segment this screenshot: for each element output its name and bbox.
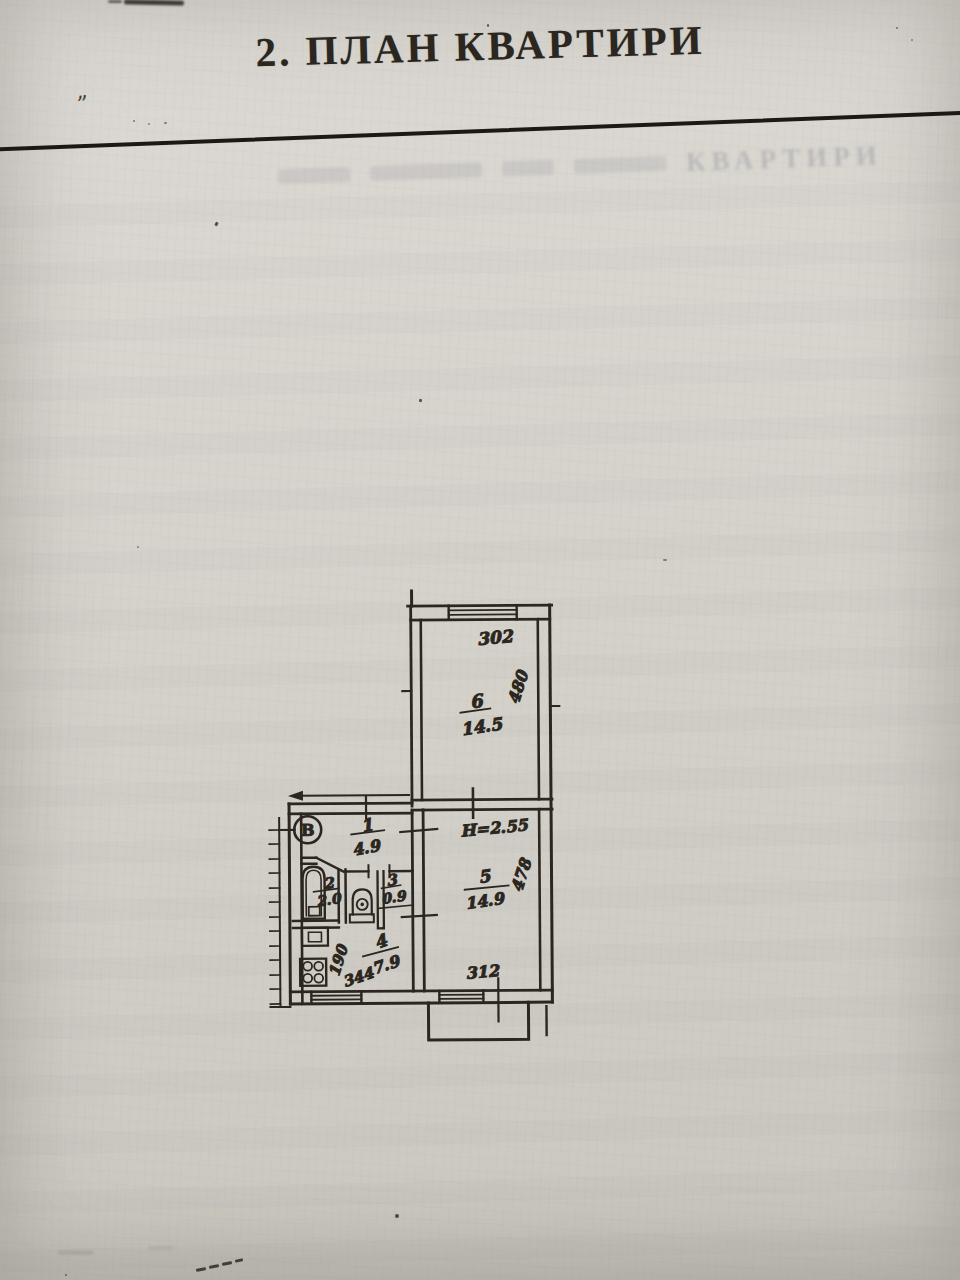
stove-icon: [300, 959, 326, 986]
ceiling-height-note: H=2.55: [460, 815, 530, 840]
room-6-walls: [402, 590, 562, 1003]
room-area: 7.9: [369, 951, 403, 978]
balcony-outline: [428, 978, 546, 1040]
room-number: 5: [477, 866, 493, 888]
window-glyph-room6: [449, 605, 517, 619]
section-circle: В: [279, 816, 321, 843]
dim-room6-width: 302: [476, 626, 514, 649]
dim-room6-depth: 480: [504, 667, 533, 706]
room-area: 4.9: [351, 836, 384, 860]
entry-marker-letter: В: [301, 821, 315, 840]
room-1-label: 1 4.9: [350, 814, 384, 859]
scanned-page: 2. ПЛАН КВАРТИРИ КВАРТИРИ „: [0, 0, 960, 1280]
floor-plan: 302 6 14.5 480: [0, 0, 960, 1280]
room-area: 14.5: [459, 713, 504, 739]
toilet-icon: [350, 889, 374, 922]
dim-room5-width: 312: [465, 961, 502, 983]
window-glyph-kitchen: [311, 991, 361, 1003]
room-area: 0.9: [380, 887, 408, 907]
exterior-boundary-hatch: [269, 818, 290, 1007]
sink-icon: [302, 928, 328, 946]
room6-room5-wall: [412, 788, 552, 818]
room-6-label: 302 6 14.5 480: [459, 626, 533, 740]
room-4-label: 4 7.9 190 344: [325, 930, 404, 992]
dim-room5-depth: 478: [507, 855, 536, 894]
room5-inner-wall: [539, 809, 540, 990]
window-glyph-room5: [439, 991, 483, 1003]
room-5-label: H=2.55 5 14.9 478 312: [460, 815, 537, 983]
room-area: 14.9: [464, 889, 507, 914]
